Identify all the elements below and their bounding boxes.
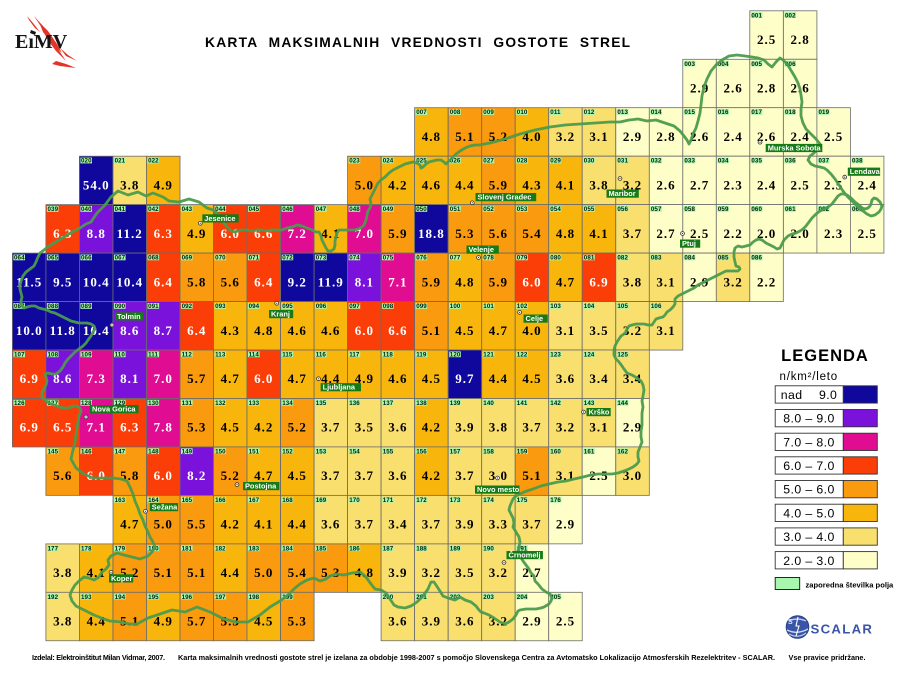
svg-text:10.4: 10.4 xyxy=(83,323,110,338)
svg-text:2.2: 2.2 xyxy=(757,274,776,289)
svg-text:135: 135 xyxy=(316,400,327,407)
svg-text:Karta maksimalnih vrednosti go: Karta maksimalnih vrednosti gostote stre… xyxy=(178,653,775,662)
svg-text:154: 154 xyxy=(349,448,360,455)
svg-text:203: 203 xyxy=(483,594,494,601)
svg-text:3.8: 3.8 xyxy=(53,565,72,580)
svg-text:3.1: 3.1 xyxy=(556,323,575,338)
svg-text:zaporedna številka polja: zaporedna številka polja xyxy=(806,581,895,590)
svg-text:2.3: 2.3 xyxy=(723,177,742,192)
svg-text:3.3: 3.3 xyxy=(489,517,508,532)
svg-text:039: 039 xyxy=(48,206,59,213)
svg-text:005: 005 xyxy=(751,61,762,68)
svg-text:6.4: 6.4 xyxy=(154,274,173,289)
svg-text:105: 105 xyxy=(617,303,628,310)
svg-text:5.1: 5.1 xyxy=(154,565,173,580)
svg-text:2.6: 2.6 xyxy=(656,177,675,192)
svg-text:094: 094 xyxy=(249,303,260,310)
svg-text:5.8: 5.8 xyxy=(187,274,206,289)
svg-text:013: 013 xyxy=(617,109,628,116)
svg-text:3.2: 3.2 xyxy=(556,129,575,144)
svg-text:Murska Sobota: Murska Sobota xyxy=(768,144,822,153)
svg-text:4.8: 4.8 xyxy=(556,226,575,241)
svg-text:3.7: 3.7 xyxy=(321,468,340,483)
svg-text:4.6: 4.6 xyxy=(422,177,441,192)
svg-text:068: 068 xyxy=(148,255,159,262)
svg-text:3.6: 3.6 xyxy=(455,614,474,629)
svg-text:5.1: 5.1 xyxy=(455,129,474,144)
svg-text:109: 109 xyxy=(81,352,92,359)
svg-text:078: 078 xyxy=(483,255,494,262)
svg-text:3.9: 3.9 xyxy=(455,420,474,435)
svg-text:032: 032 xyxy=(651,158,662,165)
svg-text:4.2: 4.2 xyxy=(254,420,273,435)
svg-text:2.4: 2.4 xyxy=(723,129,742,144)
svg-text:111: 111 xyxy=(148,352,158,359)
svg-text:4.4: 4.4 xyxy=(455,177,474,192)
svg-text:015: 015 xyxy=(684,109,695,116)
svg-text:189: 189 xyxy=(450,545,461,552)
svg-text:11.2: 11.2 xyxy=(117,226,143,241)
svg-text:10.0: 10.0 xyxy=(16,323,43,338)
svg-text:161: 161 xyxy=(584,448,595,455)
svg-text:141: 141 xyxy=(517,400,528,407)
svg-text:167: 167 xyxy=(249,497,260,504)
svg-text:3.7: 3.7 xyxy=(455,468,474,483)
svg-text:134: 134 xyxy=(282,400,293,407)
svg-text:4.7: 4.7 xyxy=(120,517,139,532)
svg-text:2.7: 2.7 xyxy=(656,226,675,241)
svg-text:3.6: 3.6 xyxy=(388,468,407,483)
svg-text:11.8: 11.8 xyxy=(50,323,76,338)
svg-text:5.1: 5.1 xyxy=(422,323,441,338)
svg-text:036: 036 xyxy=(785,158,796,165)
svg-text:086: 086 xyxy=(751,255,762,262)
svg-text:112: 112 xyxy=(182,352,193,359)
svg-text:130: 130 xyxy=(148,400,159,407)
svg-text:2.4: 2.4 xyxy=(757,177,776,192)
svg-text:139: 139 xyxy=(450,400,461,407)
svg-text:151: 151 xyxy=(249,448,260,455)
svg-text:118: 118 xyxy=(383,352,394,359)
svg-text:5.3: 5.3 xyxy=(455,226,474,241)
svg-text:115: 115 xyxy=(282,352,293,359)
svg-text:4.5: 4.5 xyxy=(221,420,240,435)
svg-text:156: 156 xyxy=(416,448,427,455)
svg-text:007: 007 xyxy=(416,109,427,116)
svg-text:7.8: 7.8 xyxy=(154,420,173,435)
svg-text:5.6: 5.6 xyxy=(489,226,508,241)
svg-text:034: 034 xyxy=(718,158,729,165)
svg-text:108: 108 xyxy=(48,352,59,359)
svg-text:5.6: 5.6 xyxy=(221,274,240,289)
svg-text:148: 148 xyxy=(148,448,159,455)
svg-text:6.9: 6.9 xyxy=(589,274,608,289)
svg-text:3.9: 3.9 xyxy=(422,614,441,629)
svg-text:059: 059 xyxy=(718,206,729,213)
svg-text:033: 033 xyxy=(684,158,695,165)
svg-text:7.1: 7.1 xyxy=(388,274,407,289)
svg-text:4.0: 4.0 xyxy=(522,323,541,338)
svg-text:186: 186 xyxy=(349,545,360,552)
svg-text:2.5: 2.5 xyxy=(858,226,877,241)
svg-text:5.9: 5.9 xyxy=(388,226,407,241)
svg-text:103: 103 xyxy=(550,303,561,310)
svg-text:4.8: 4.8 xyxy=(455,274,474,289)
svg-text:016: 016 xyxy=(718,109,729,116)
svg-text:179: 179 xyxy=(115,545,126,552)
svg-text:041: 041 xyxy=(115,206,126,213)
svg-text:S: S xyxy=(788,619,793,626)
svg-text:066: 066 xyxy=(81,255,92,262)
svg-text:043: 043 xyxy=(182,206,193,213)
svg-text:n/km²/leto: n/km²/leto xyxy=(780,371,839,383)
svg-text:144: 144 xyxy=(617,400,628,407)
svg-text:123: 123 xyxy=(550,352,561,359)
svg-text:3.2: 3.2 xyxy=(489,565,508,580)
svg-text:168: 168 xyxy=(282,497,293,504)
svg-text:8.2: 8.2 xyxy=(187,468,206,483)
svg-text:157: 157 xyxy=(450,448,461,455)
svg-text:046: 046 xyxy=(282,206,293,213)
svg-text:7.1: 7.1 xyxy=(87,420,106,435)
svg-text:3.1: 3.1 xyxy=(589,129,608,144)
svg-text:090: 090 xyxy=(115,303,126,310)
svg-text:4.7: 4.7 xyxy=(489,323,508,338)
svg-text:5.2: 5.2 xyxy=(221,468,240,483)
svg-text:6.9: 6.9 xyxy=(20,371,39,386)
svg-text:056: 056 xyxy=(617,206,628,213)
svg-text:4.3: 4.3 xyxy=(221,323,240,338)
svg-text:049: 049 xyxy=(383,206,394,213)
svg-text:149: 149 xyxy=(182,448,193,455)
svg-text:110: 110 xyxy=(115,352,126,359)
svg-text:024: 024 xyxy=(383,158,394,165)
svg-text:197: 197 xyxy=(215,594,226,601)
svg-text:137: 137 xyxy=(383,400,394,407)
svg-text:4.6: 4.6 xyxy=(321,323,340,338)
svg-text:183: 183 xyxy=(249,545,260,552)
svg-text:081: 081 xyxy=(584,255,595,262)
svg-text:2.8: 2.8 xyxy=(656,129,675,144)
svg-text:nad 9.0: nad 9.0 xyxy=(781,388,838,402)
svg-text:7.3: 7.3 xyxy=(87,371,106,386)
svg-text:116: 116 xyxy=(316,352,327,359)
svg-text:176: 176 xyxy=(550,497,561,504)
svg-text:6.4: 6.4 xyxy=(187,323,206,338)
svg-text:3.1: 3.1 xyxy=(656,323,675,338)
svg-text:2.0 – 3.0: 2.0 – 3.0 xyxy=(783,554,834,568)
svg-text:2.5: 2.5 xyxy=(556,614,575,629)
svg-text:5.0: 5.0 xyxy=(254,565,273,580)
svg-text:8.7: 8.7 xyxy=(154,323,173,338)
svg-text:091: 091 xyxy=(148,303,159,310)
svg-text:204: 204 xyxy=(517,594,528,601)
svg-text:4.8: 4.8 xyxy=(254,323,273,338)
svg-text:2.9: 2.9 xyxy=(623,420,642,435)
svg-text:100: 100 xyxy=(450,303,461,310)
svg-text:9.7: 9.7 xyxy=(455,371,474,386)
svg-text:132: 132 xyxy=(215,400,226,407)
svg-text:3.8: 3.8 xyxy=(623,274,642,289)
svg-text:5.0 – 6.0: 5.0 – 6.0 xyxy=(783,483,834,497)
svg-text:4.8: 4.8 xyxy=(422,129,441,144)
svg-text:050: 050 xyxy=(416,206,427,213)
svg-text:6.6: 6.6 xyxy=(254,226,273,241)
svg-text:113: 113 xyxy=(215,352,226,359)
svg-text:8.8: 8.8 xyxy=(87,226,106,241)
svg-text:079: 079 xyxy=(517,255,528,262)
svg-text:3.6: 3.6 xyxy=(388,420,407,435)
svg-text:099: 099 xyxy=(416,303,427,310)
svg-text:022: 022 xyxy=(148,158,159,165)
svg-text:5.0: 5.0 xyxy=(154,517,173,532)
svg-text:150: 150 xyxy=(215,448,226,455)
svg-text:061: 061 xyxy=(785,206,796,213)
svg-text:5.9: 5.9 xyxy=(489,274,508,289)
svg-text:4.2: 4.2 xyxy=(221,517,240,532)
svg-text:8.1: 8.1 xyxy=(355,274,374,289)
svg-text:4.5: 4.5 xyxy=(422,371,441,386)
svg-text:6.4: 6.4 xyxy=(254,274,273,289)
svg-text:114: 114 xyxy=(249,352,260,359)
svg-text:158: 158 xyxy=(483,448,494,455)
svg-text:077: 077 xyxy=(450,255,461,262)
svg-text:142: 142 xyxy=(550,400,561,407)
svg-text:Slovenj Gradec: Slovenj Gradec xyxy=(478,193,532,202)
svg-text:5.1: 5.1 xyxy=(522,468,541,483)
svg-text:175: 175 xyxy=(517,497,528,504)
svg-text:071: 071 xyxy=(249,255,260,262)
svg-text:4.2: 4.2 xyxy=(422,468,441,483)
svg-text:083: 083 xyxy=(651,255,662,262)
svg-text:5.6: 5.6 xyxy=(53,468,72,483)
svg-text:072: 072 xyxy=(282,255,293,262)
svg-text:029: 029 xyxy=(550,158,561,165)
svg-text:2.8: 2.8 xyxy=(757,81,776,96)
svg-text:021: 021 xyxy=(115,158,126,165)
svg-text:067: 067 xyxy=(115,255,126,262)
svg-text:5.9: 5.9 xyxy=(422,274,441,289)
svg-text:3.2: 3.2 xyxy=(723,274,742,289)
svg-text:2.9: 2.9 xyxy=(623,129,642,144)
svg-text:2.4: 2.4 xyxy=(858,177,877,192)
svg-text:3.7: 3.7 xyxy=(321,420,340,435)
svg-text:Ljubljana: Ljubljana xyxy=(323,383,356,392)
svg-text:4.4: 4.4 xyxy=(221,565,240,580)
svg-text:7.0 – 8.0: 7.0 – 8.0 xyxy=(783,435,834,449)
svg-text:Koper: Koper xyxy=(111,574,132,583)
svg-text:3.5: 3.5 xyxy=(355,420,374,435)
svg-text:4.4: 4.4 xyxy=(489,371,508,386)
svg-text:080: 080 xyxy=(550,255,561,262)
svg-text:2.3: 2.3 xyxy=(824,226,843,241)
svg-text:120: 120 xyxy=(450,352,461,359)
svg-text:124: 124 xyxy=(584,352,595,359)
svg-text:035: 035 xyxy=(751,158,762,165)
svg-text:Ptuj: Ptuj xyxy=(682,239,696,248)
svg-text:11.9: 11.9 xyxy=(318,274,344,289)
svg-text:147: 147 xyxy=(115,448,126,455)
svg-text:3.4: 3.4 xyxy=(388,517,407,532)
svg-text:4.2: 4.2 xyxy=(422,420,441,435)
svg-text:084: 084 xyxy=(684,255,695,262)
svg-text:037: 037 xyxy=(819,158,830,165)
svg-text:6.0: 6.0 xyxy=(221,226,240,241)
svg-text:8.6: 8.6 xyxy=(120,323,139,338)
svg-text:2.7: 2.7 xyxy=(690,177,709,192)
svg-text:4.1: 4.1 xyxy=(589,226,608,241)
svg-text:Kranj: Kranj xyxy=(271,310,290,319)
svg-text:6.5: 6.5 xyxy=(53,420,72,435)
svg-text:3.7: 3.7 xyxy=(355,517,374,532)
svg-text:119: 119 xyxy=(416,352,427,359)
svg-text:098: 098 xyxy=(383,303,394,310)
svg-text:Sežana: Sežana xyxy=(152,503,178,512)
svg-text:3.7: 3.7 xyxy=(355,468,374,483)
svg-text:060: 060 xyxy=(751,206,762,213)
svg-text:169: 169 xyxy=(316,497,327,504)
svg-text:3.5: 3.5 xyxy=(589,323,608,338)
svg-text:6.9: 6.9 xyxy=(20,420,39,435)
svg-text:4.1: 4.1 xyxy=(556,177,575,192)
svg-text:182: 182 xyxy=(215,545,226,552)
svg-text:EıMV: EıMV xyxy=(15,31,68,53)
svg-text:4.9: 4.9 xyxy=(187,226,206,241)
svg-text:3.1: 3.1 xyxy=(589,420,608,435)
svg-text:4.9: 4.9 xyxy=(154,177,173,192)
svg-text:54.0: 54.0 xyxy=(83,177,110,192)
svg-text:Maribor: Maribor xyxy=(609,189,636,198)
svg-text:093: 093 xyxy=(215,303,226,310)
svg-text:069: 069 xyxy=(182,255,193,262)
svg-text:011: 011 xyxy=(550,109,561,116)
svg-text:184: 184 xyxy=(282,545,293,552)
svg-text:096: 096 xyxy=(316,303,327,310)
svg-text:Postojna: Postojna xyxy=(245,482,277,491)
svg-text:070: 070 xyxy=(215,255,226,262)
svg-text:030: 030 xyxy=(584,158,595,165)
svg-text:3.7: 3.7 xyxy=(422,517,441,532)
svg-text:5.0: 5.0 xyxy=(355,177,374,192)
svg-text:122: 122 xyxy=(517,352,528,359)
svg-text:Nova Gorica: Nova Gorica xyxy=(92,405,136,414)
svg-text:018: 018 xyxy=(785,109,796,116)
svg-text:3.4: 3.4 xyxy=(589,371,608,386)
svg-text:054: 054 xyxy=(550,206,561,213)
svg-text:3.6: 3.6 xyxy=(388,614,407,629)
svg-text:6.0 – 7.0: 6.0 – 7.0 xyxy=(783,459,834,473)
svg-text:173: 173 xyxy=(450,497,461,504)
svg-text:LEGENDA: LEGENDA xyxy=(781,347,869,365)
svg-text:Novo mesto: Novo mesto xyxy=(477,485,520,494)
svg-text:085: 085 xyxy=(718,255,729,262)
svg-text:181: 181 xyxy=(182,545,193,552)
svg-text:3.8: 3.8 xyxy=(53,614,72,629)
svg-text:3.9: 3.9 xyxy=(455,517,474,532)
svg-text:133: 133 xyxy=(249,400,260,407)
svg-text:4.1: 4.1 xyxy=(254,517,273,532)
svg-text:5.1: 5.1 xyxy=(187,565,206,580)
svg-text:076: 076 xyxy=(416,255,427,262)
svg-text:2.6: 2.6 xyxy=(723,81,742,96)
svg-text:009: 009 xyxy=(483,109,494,116)
svg-text:4.6: 4.6 xyxy=(388,371,407,386)
svg-text:3.5: 3.5 xyxy=(455,565,474,580)
svg-text:4.6: 4.6 xyxy=(288,323,307,338)
svg-text:052: 052 xyxy=(483,206,494,213)
svg-text:3.8: 3.8 xyxy=(120,177,139,192)
svg-text:2.5: 2.5 xyxy=(824,129,843,144)
svg-text:140: 140 xyxy=(483,400,494,407)
svg-text:2.5: 2.5 xyxy=(790,177,809,192)
svg-text:121: 121 xyxy=(483,352,494,359)
svg-text:6.0: 6.0 xyxy=(522,274,541,289)
svg-text:2.9: 2.9 xyxy=(556,517,575,532)
svg-text:097: 097 xyxy=(349,303,360,310)
svg-text:001: 001 xyxy=(751,12,762,19)
svg-text:146: 146 xyxy=(81,448,92,455)
svg-text:5.4: 5.4 xyxy=(288,565,307,580)
svg-text:5.7: 5.7 xyxy=(187,614,206,629)
svg-text:042: 042 xyxy=(148,206,159,213)
svg-text:9.5: 9.5 xyxy=(53,274,72,289)
svg-text:2.5: 2.5 xyxy=(757,32,776,47)
svg-text:3.0 – 4.0: 3.0 – 4.0 xyxy=(783,530,834,544)
svg-text:136: 136 xyxy=(349,400,360,407)
svg-text:4.7: 4.7 xyxy=(556,274,575,289)
svg-text:040: 040 xyxy=(81,206,92,213)
svg-text:188: 188 xyxy=(416,545,427,552)
svg-text:065: 065 xyxy=(48,255,59,262)
svg-text:7.0: 7.0 xyxy=(154,371,173,386)
svg-text:010: 010 xyxy=(517,109,528,116)
svg-text:5.2: 5.2 xyxy=(288,420,307,435)
svg-text:Celje: Celje xyxy=(526,314,544,323)
svg-text:4.7: 4.7 xyxy=(221,371,240,386)
svg-text:195: 195 xyxy=(148,594,159,601)
svg-text:003: 003 xyxy=(684,61,695,68)
svg-text:193: 193 xyxy=(81,594,92,601)
svg-text:3.0: 3.0 xyxy=(489,468,508,483)
svg-text:6.6: 6.6 xyxy=(388,323,407,338)
svg-text:172: 172 xyxy=(416,497,427,504)
svg-text:165: 165 xyxy=(182,497,193,504)
svg-text:4.5: 4.5 xyxy=(288,468,307,483)
svg-text:196: 196 xyxy=(182,594,193,601)
svg-text:053: 053 xyxy=(517,206,528,213)
svg-text:3.2: 3.2 xyxy=(422,565,441,580)
svg-text:074: 074 xyxy=(349,255,360,262)
svg-text:178: 178 xyxy=(81,545,92,552)
svg-text:020: 020 xyxy=(81,158,92,165)
svg-text:088: 088 xyxy=(48,303,59,310)
svg-text:10.4: 10.4 xyxy=(116,274,143,289)
svg-text:159: 159 xyxy=(517,448,528,455)
svg-text:048: 048 xyxy=(349,206,360,213)
svg-text:064: 064 xyxy=(14,255,25,262)
svg-text:170: 170 xyxy=(349,497,360,504)
svg-text:163: 163 xyxy=(115,497,126,504)
svg-text:125: 125 xyxy=(617,352,628,359)
svg-text:047: 047 xyxy=(316,206,327,213)
svg-text:117: 117 xyxy=(349,352,360,359)
svg-text:4.5: 4.5 xyxy=(455,323,474,338)
svg-text:SCALAR: SCALAR xyxy=(811,622,874,637)
svg-text:092: 092 xyxy=(182,303,193,310)
svg-text:3.8: 3.8 xyxy=(489,420,508,435)
svg-text:187: 187 xyxy=(383,545,394,552)
svg-text:171: 171 xyxy=(383,497,394,504)
